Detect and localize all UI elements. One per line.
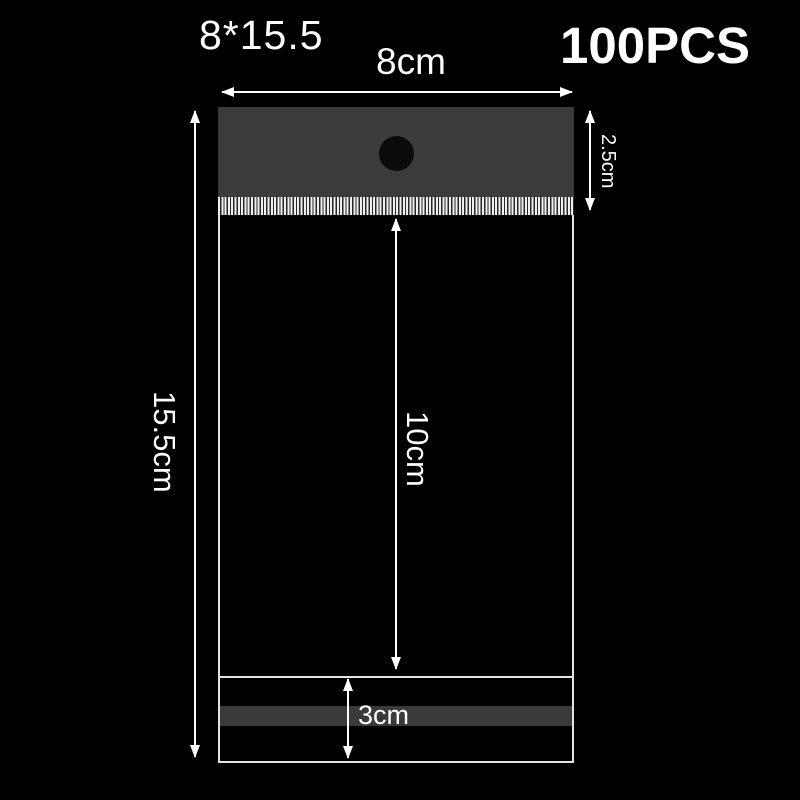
flap-height-label: 3cm: [358, 700, 409, 731]
flap-height-arrow: [347, 679, 349, 758]
width-arrow: [222, 91, 572, 93]
tear-serration-strip: [218, 197, 574, 215]
body-height-arrow: [395, 219, 397, 669]
total-height-label: 15.5cm: [146, 391, 182, 493]
total-height-arrow: [194, 111, 196, 757]
header-height-label: 2.5cm: [596, 134, 619, 188]
body-height-label: 10cm: [399, 411, 435, 487]
width-dimension-label: 8cm: [376, 41, 446, 83]
header-height-arrow: [589, 111, 591, 210]
product-diagram: 8*15.5 8cm 100PCS 15.5cm 10cm 2.5cm 3cm: [0, 0, 800, 800]
product-size-label: 8*15.5: [199, 12, 324, 59]
hang-hole-icon: [379, 136, 414, 171]
quantity-label: 100PCS: [560, 16, 750, 75]
